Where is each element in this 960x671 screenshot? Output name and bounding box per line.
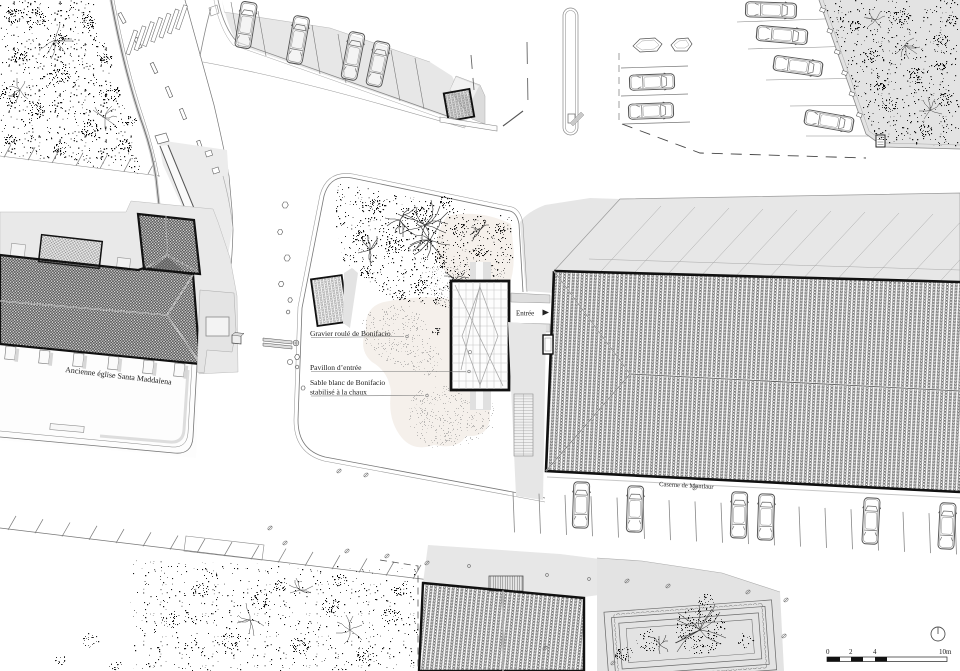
- svg-text:Pavillon d’entrée: Pavillon d’entrée: [310, 363, 362, 372]
- svg-text:Sable blanc de Bonifacio: Sable blanc de Bonifacio: [310, 378, 385, 387]
- svg-text:Entrée: Entrée: [516, 310, 534, 318]
- svg-text:2: 2: [849, 648, 853, 656]
- svg-text:stabilisé à la chaux: stabilisé à la chaux: [310, 388, 367, 397]
- svg-text:10m: 10m: [939, 648, 952, 656]
- svg-text:0: 0: [826, 648, 830, 656]
- svg-text:4: 4: [873, 648, 877, 656]
